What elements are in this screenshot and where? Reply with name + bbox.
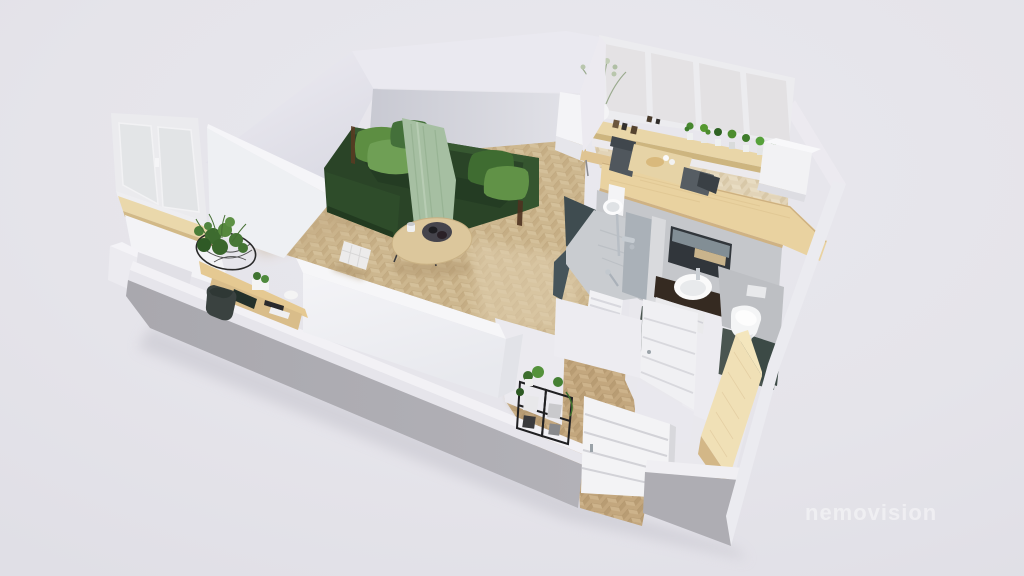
- svg-text:nemovision: nemovision: [805, 500, 937, 525]
